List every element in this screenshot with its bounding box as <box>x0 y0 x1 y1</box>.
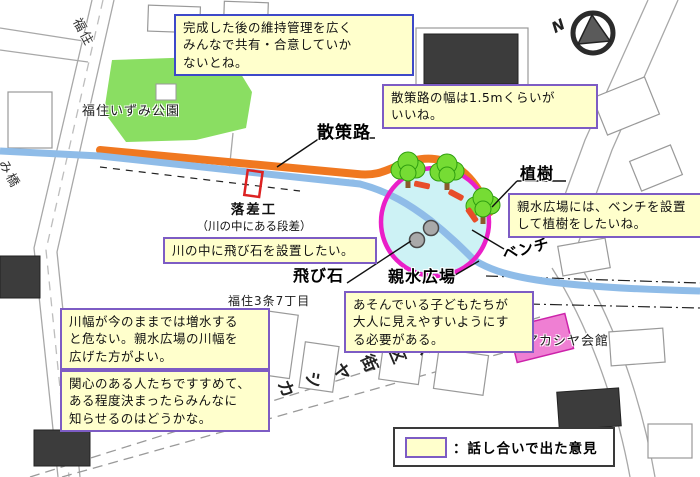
water-plaza-label: 親水広場 <box>388 263 456 287</box>
planning-map: 福住 み橋 福住アカシヤ街区公園 福住いずみ公園 福住3条7丁目 福住アカシヤ会… <box>0 0 700 477</box>
legend-swatch <box>405 437 447 458</box>
drop-structure-sub: （川の中にある段差） <box>188 218 320 234</box>
note-path-width: 散策路の幅は1.5mくらいが いいね。 <box>382 84 598 129</box>
note-bench-planting: 親水広場には、ベンチを設置 して植樹をしたいね。 <box>508 193 700 238</box>
note-outreach: 関心のある人たちですすめて、 ある程度決まったらみんなに 知らせるのはどうかな。 <box>60 370 270 432</box>
note-maintenance: 完成した後の維持管理を広く みんなで共有・合意していか ないとね。 <box>174 14 414 76</box>
legend-separator: ： <box>453 441 468 457</box>
drop-structure-title: 落差工 <box>188 198 320 218</box>
note-river-width: 川幅が今のままでは増水する と危ない。親水広場の川幅を 広げた方がよい。 <box>60 308 270 370</box>
planting-label: 植樹 <box>520 160 554 184</box>
legend: ：話し合いで出た意見 <box>393 427 615 467</box>
walking-path-label: 散策路 <box>317 118 371 143</box>
note-stepping-stones: 川の中に飛び石を設置したい。 <box>163 237 377 264</box>
note-visibility: あそんでいる子どもたちが 大人に見えやすいようにす る必要がある。 <box>344 291 534 353</box>
drop-structure-label: 落差工 （川の中にある段差） <box>188 198 320 234</box>
compass-icon <box>573 13 613 53</box>
park-building <box>156 84 176 100</box>
legend-label: 話し合いで出た意見 <box>468 441 598 457</box>
park-label: 福住いずみ公園 <box>82 100 180 119</box>
chome-label: 福住3条7丁目 <box>228 292 310 309</box>
stepping-stone-label: 飛び石 <box>293 262 344 286</box>
